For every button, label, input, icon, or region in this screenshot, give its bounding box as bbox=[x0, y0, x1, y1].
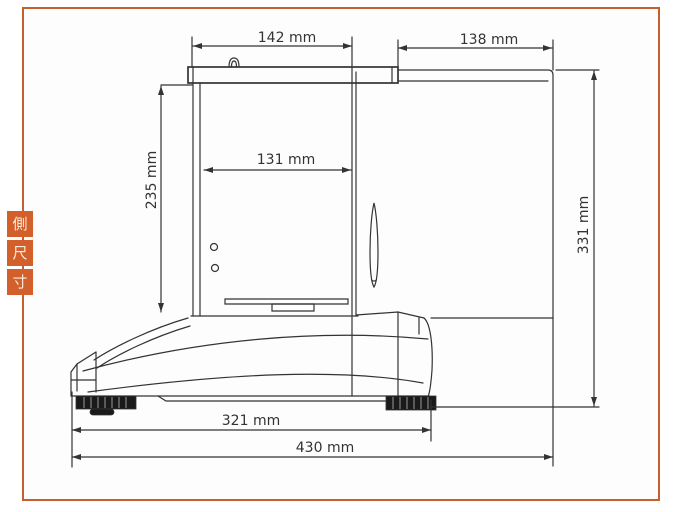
balance-base-housing bbox=[71, 312, 432, 401]
door-knobs bbox=[211, 244, 219, 272]
dimension-235mm: 235 mm bbox=[144, 85, 192, 312]
weighing-pan bbox=[225, 299, 348, 311]
sliding-door-open bbox=[398, 70, 553, 318]
dimension-142mm-label: 142 mm bbox=[258, 30, 316, 46]
dimension-321mm-label: 321 mm bbox=[222, 413, 280, 429]
door-handle bbox=[370, 203, 378, 287]
dimension-430mm: 430 mm bbox=[72, 318, 553, 466]
dimension-142mm: 142 mm bbox=[192, 30, 352, 66]
rear-leveling-foot bbox=[386, 396, 436, 410]
dimension-331mm: 331 mm bbox=[430, 70, 599, 407]
dimension-331mm-label: 331 mm bbox=[576, 196, 592, 254]
dimension-138mm: 138 mm bbox=[398, 32, 553, 70]
hanging-ring-icon bbox=[229, 58, 239, 67]
front-leveling-foot bbox=[76, 396, 136, 415]
page: 側 尺 寸 bbox=[0, 0, 674, 512]
dimension-430mm-label: 430 mm bbox=[296, 440, 354, 456]
draft-shield-top-plate bbox=[188, 67, 398, 83]
balance-dimension-diagram: 142 mm 138 mm 131 mm 235 mm bbox=[0, 0, 674, 512]
draft-shield-walls bbox=[191, 67, 358, 316]
dimension-138mm-label: 138 mm bbox=[460, 32, 518, 48]
balance-drawing bbox=[71, 58, 553, 415]
dimension-131mm-label: 131 mm bbox=[257, 152, 315, 168]
dimension-131mm: 131 mm bbox=[204, 152, 351, 173]
dimension-235mm-label: 235 mm bbox=[144, 151, 160, 209]
